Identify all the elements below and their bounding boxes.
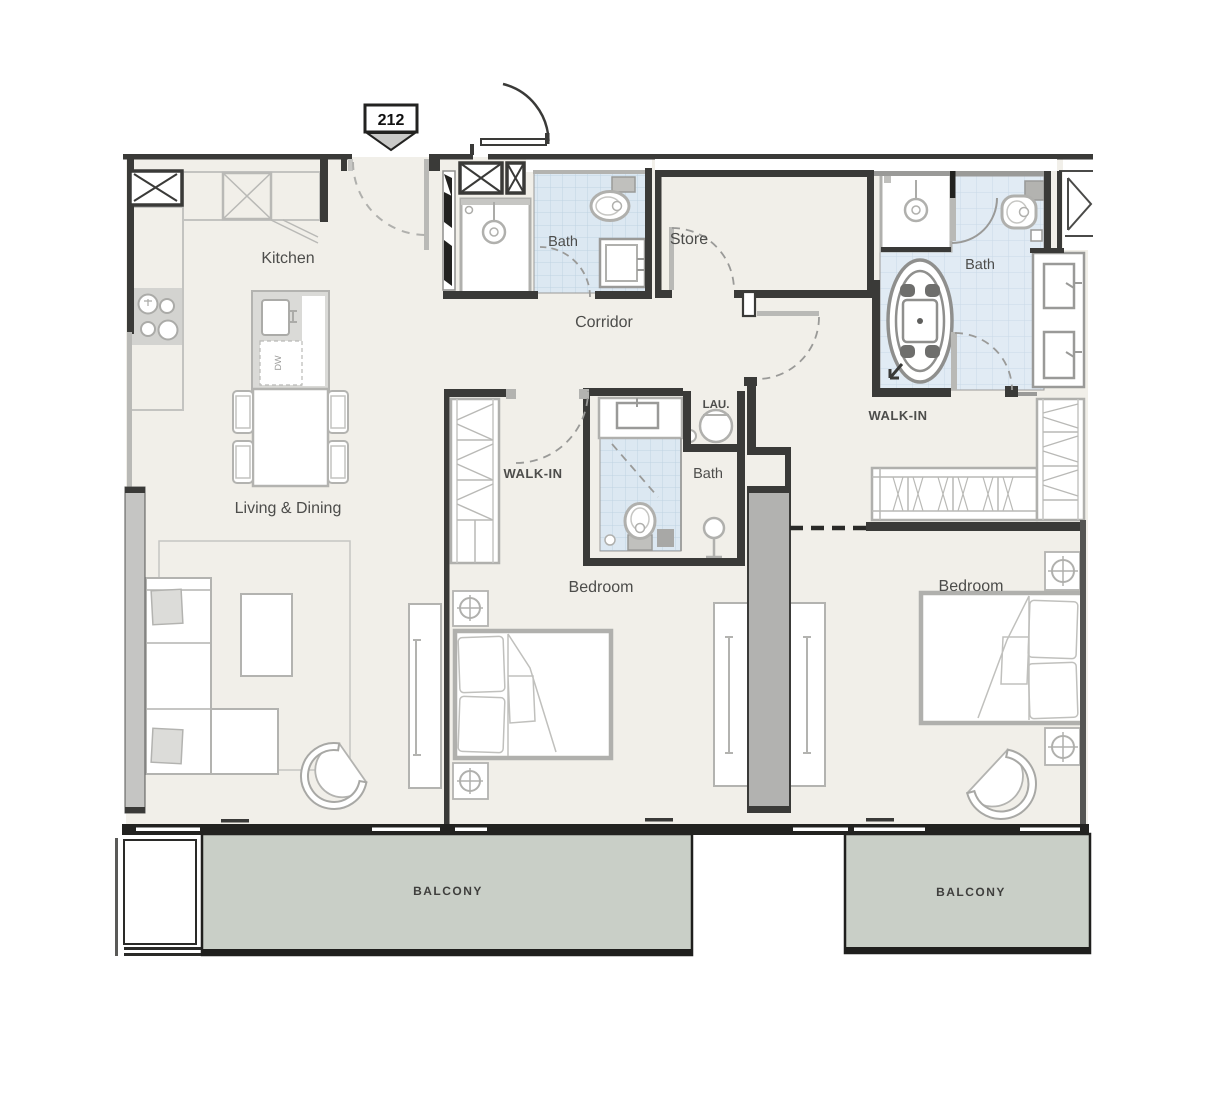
svg-text:Corridor: Corridor <box>575 314 633 331</box>
svg-text:212: 212 <box>378 112 405 129</box>
svg-text:Store: Store <box>670 231 708 248</box>
svg-text:Bath: Bath <box>693 466 723 482</box>
svg-text:Bedroom: Bedroom <box>569 579 634 596</box>
svg-text:BALCONY: BALCONY <box>413 884 483 898</box>
svg-text:WALK-IN: WALK-IN <box>503 466 562 481</box>
svg-text:Living & Dining: Living & Dining <box>235 500 342 517</box>
svg-text:BALCONY: BALCONY <box>936 885 1006 899</box>
svg-text:LAU.: LAU. <box>703 399 730 411</box>
svg-text:WALK-IN: WALK-IN <box>868 408 927 423</box>
svg-text:Bath: Bath <box>548 234 578 250</box>
svg-text:DW: DW <box>273 355 283 370</box>
svg-text:Bedroom: Bedroom <box>939 578 1004 595</box>
svg-text:Kitchen: Kitchen <box>261 250 314 267</box>
svg-text:Bath: Bath <box>965 257 995 273</box>
